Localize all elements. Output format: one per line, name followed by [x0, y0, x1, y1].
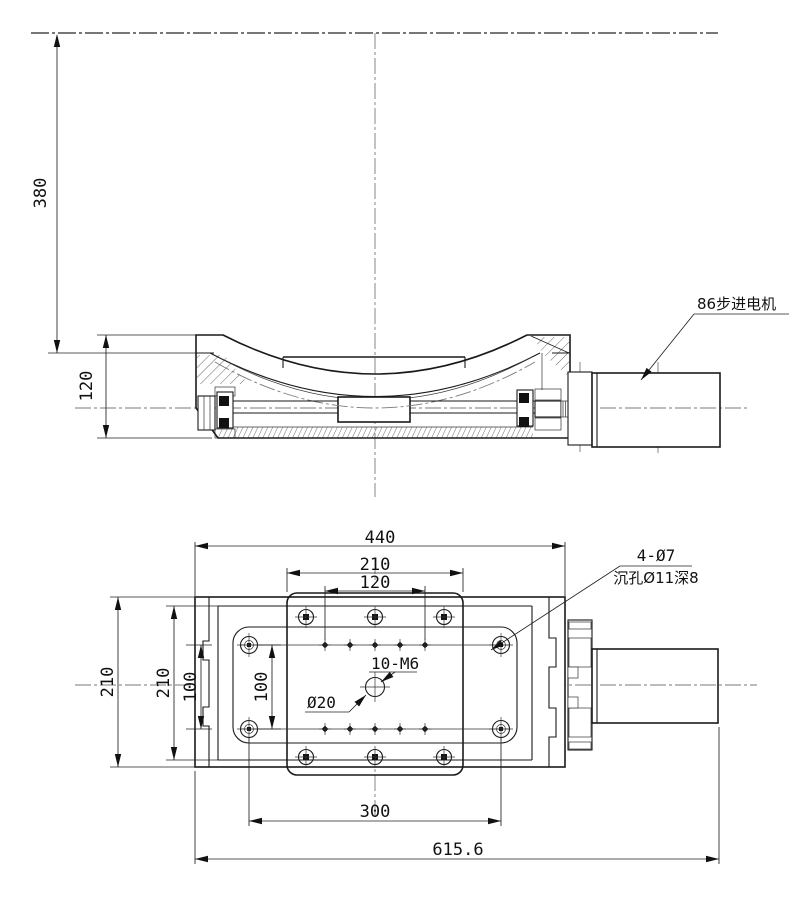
- motor-callout: 86步进电机: [638, 295, 789, 382]
- label-10-m6: 10-M6: [371, 654, 419, 673]
- dim-615-6-label: 615.6: [432, 840, 483, 860]
- worm-gear-housing: [338, 397, 410, 422]
- motor-label: 86步进电机: [697, 295, 776, 313]
- right-wall-section-hatch: [533, 337, 569, 377]
- dim-120-plan-label: 120: [360, 573, 391, 593]
- left-bearing-assembly: [198, 392, 233, 430]
- dim-210-top-label: 210: [360, 555, 391, 575]
- label-d20: Ø20: [307, 693, 336, 712]
- dim-210-left-outer-label: 210: [98, 667, 118, 698]
- dim-300-label: 300: [360, 802, 391, 822]
- dim-380-label: 380: [31, 178, 51, 209]
- dim-100-outer-label: 100: [181, 672, 201, 703]
- plan-view: 440 210 120 210: [75, 528, 757, 864]
- motor-flange-side: [568, 372, 592, 445]
- dim-210-left-inner-label: 210: [154, 668, 174, 699]
- engineering-drawing: 380 120 86步进电机: [0, 0, 800, 908]
- dim-100-inner-label: 100: [252, 672, 272, 703]
- motor-body-side: [592, 373, 720, 447]
- right-coupling-hatch: [535, 389, 561, 400]
- label-4-d7: 4-Ø7: [637, 546, 676, 565]
- dim-120-side: 120: [77, 335, 212, 438]
- dim-440-label: 440: [365, 528, 396, 548]
- drawing-canvas: 380 120 86步进电机: [0, 0, 800, 908]
- right-coupling-hatch: [535, 418, 561, 430]
- dim-380: 380: [31, 34, 196, 353]
- motor-body-plan: [592, 649, 718, 723]
- dim-120-side-label: 120: [77, 371, 97, 402]
- label-counterbore: 沉孔Ø11深8: [613, 569, 698, 587]
- side-view: 380 120 86步进电机: [31, 33, 789, 497]
- base-plate-section-hatch: [218, 427, 533, 438]
